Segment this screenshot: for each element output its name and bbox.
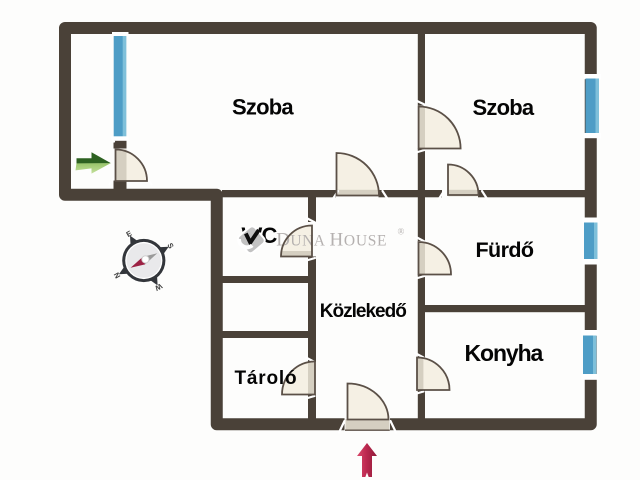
svg-text:Szoba: Szoba [473,95,535,120]
svg-text:Tároló: Tároló [235,368,298,389]
svg-text:Konyha: Konyha [465,340,544,366]
svg-text:DUNA: DUNA [276,230,326,251]
svg-text:HOUSE: HOUSE [330,230,388,251]
svg-text:Fürdő: Fürdő [476,238,534,262]
svg-text:Közlekedő: Közlekedő [320,301,406,322]
svg-text:Szoba: Szoba [232,95,294,120]
svg-text:®: ® [398,227,405,237]
